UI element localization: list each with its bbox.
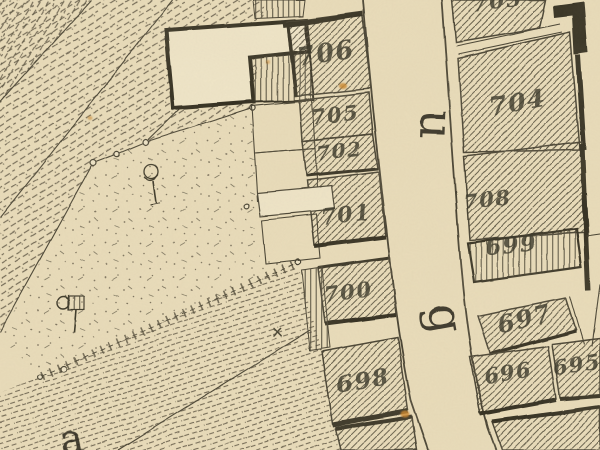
parcel-label-708: 708	[462, 185, 513, 215]
parcel-label-699: 699	[484, 230, 539, 261]
map-canvas[interactable]: 706705702701700698703704708699697696695u…	[0, 0, 600, 450]
street-letter-u: u	[409, 109, 464, 141]
cadastral-map: 706705702701700698703704708699697696695u…	[0, 0, 600, 450]
parcel-label-702: 702	[315, 137, 364, 166]
